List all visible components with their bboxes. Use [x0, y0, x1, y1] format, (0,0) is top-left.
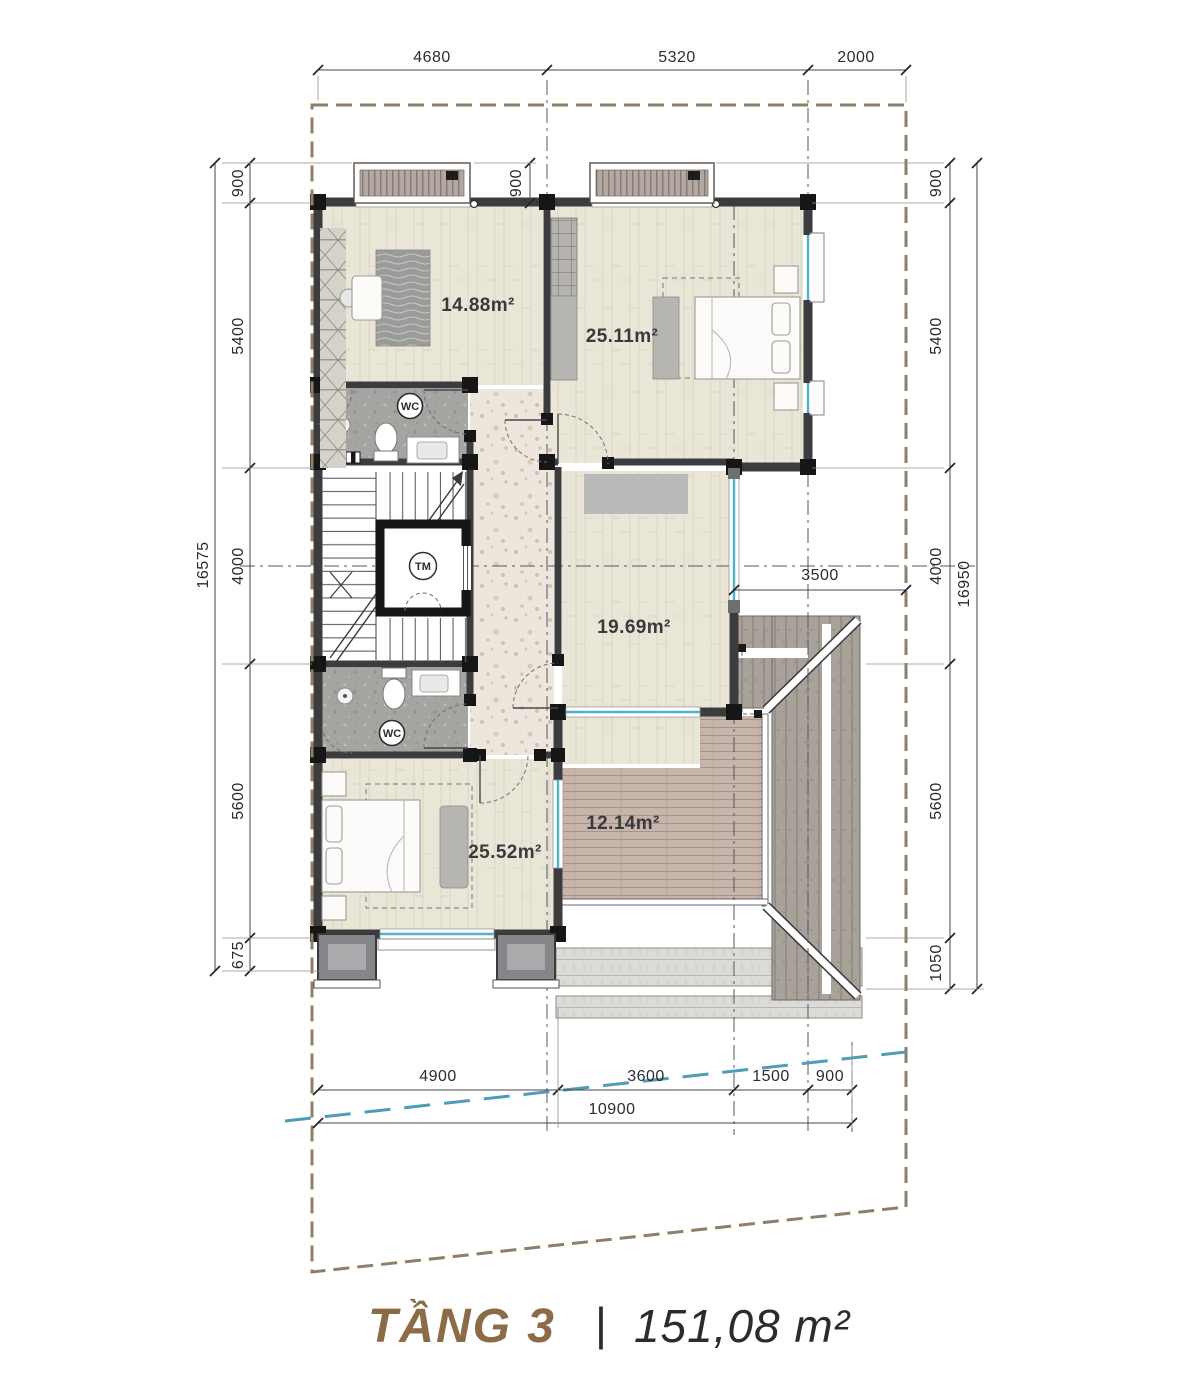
- toilet: [383, 679, 405, 709]
- dim-right-2: 5400: [928, 317, 945, 355]
- nightstand: [322, 772, 346, 796]
- canopy-2: [590, 163, 714, 203]
- roof-slat-gap-v: [822, 624, 831, 994]
- nightstand: [774, 266, 798, 293]
- dim-left-3: 4000: [230, 547, 247, 585]
- floor-plan-page: TM WC WC: [0, 0, 1200, 1400]
- dims-bottom: 4900 3600 1500 900 10900: [313, 1008, 857, 1128]
- dim-left-1: 900: [230, 169, 247, 197]
- dim-top-2: 5320: [658, 49, 696, 66]
- floor-title: TẦNG 3: [368, 1299, 556, 1353]
- nightstand: [322, 896, 346, 920]
- dim-left-2: 5400: [230, 317, 247, 355]
- dim-left-5: 675: [230, 941, 247, 969]
- master-bedroom-area-label: 25.11m²: [586, 326, 659, 347]
- floor-area-total: 151,08 m²: [634, 1300, 851, 1352]
- dim-canopy-depth: 900: [508, 169, 525, 197]
- dim-top-3: 2000: [837, 49, 875, 66]
- dim-bottom-2: 3600: [627, 1068, 665, 1085]
- dim-right-total: 16950: [956, 561, 973, 608]
- canopy-hook-1: [471, 201, 478, 208]
- furniture-family-room: [584, 474, 688, 514]
- dim-bottom-3: 1500: [752, 1068, 790, 1085]
- terrace-slider: [566, 707, 700, 717]
- floor-plan-drawing: TM WC WC: [0, 0, 1200, 1400]
- canopies: [354, 163, 714, 203]
- dresser: [440, 806, 468, 888]
- dim-bottom-4: 900: [816, 1068, 844, 1085]
- roof-slat-gap-h: [736, 648, 808, 658]
- dim-mid: 3500: [729, 567, 911, 595]
- window-east-2: [803, 381, 824, 415]
- rug: [376, 250, 430, 346]
- dim-mid-3500: 3500: [801, 567, 839, 584]
- wardrobe: [320, 228, 346, 468]
- wc-bottom-label: WC: [383, 728, 401, 740]
- toilet: [375, 423, 397, 453]
- dim-bottom-total: 10900: [589, 1101, 636, 1118]
- window-bedroom2-south: [378, 929, 495, 950]
- elevator: TM: [380, 524, 471, 612]
- terrace-railing-east: [762, 714, 768, 906]
- desk: [352, 276, 382, 320]
- dim-bottom-1: 4900: [419, 1068, 457, 1085]
- dim-right-3: 4000: [928, 547, 945, 585]
- window-bedroom2-east: [553, 780, 563, 868]
- title-block: TẦNG 3 | 151,08 m²: [368, 1298, 851, 1353]
- elevator-label: TM: [415, 561, 431, 573]
- dim-right-4: 5600: [928, 782, 945, 820]
- duct-shaft: [551, 218, 577, 296]
- dim-top-1: 4680: [413, 49, 451, 66]
- terrace-railing-south: [560, 899, 768, 905]
- nightstand: [774, 383, 798, 410]
- bedroom2-area-label: 25.52m²: [468, 842, 542, 863]
- hall-floor: [470, 389, 554, 755]
- terrace-area-label: 12.14m²: [586, 813, 660, 834]
- title-separator: |: [595, 1298, 607, 1350]
- dims-top: 4680 5320 2000: [313, 49, 911, 102]
- window-east-1: [803, 233, 824, 302]
- cabinet: [584, 474, 688, 514]
- family-room-area-label: 19.69m²: [597, 617, 671, 638]
- dim-right-1: 900: [928, 169, 945, 197]
- pillow: [326, 806, 342, 842]
- pillow: [772, 341, 790, 373]
- dim-right-5: 1050: [928, 944, 945, 982]
- study-area-label: 14.88m²: [441, 295, 515, 316]
- dim-left-4: 5600: [230, 782, 247, 820]
- closet: [551, 296, 577, 380]
- wc-top-label: WC: [401, 401, 419, 413]
- canopy-1: [354, 163, 470, 203]
- pillow: [326, 848, 342, 884]
- elevator-door: [461, 546, 471, 590]
- dim-left-total: 16575: [195, 542, 212, 589]
- pillow: [772, 303, 790, 335]
